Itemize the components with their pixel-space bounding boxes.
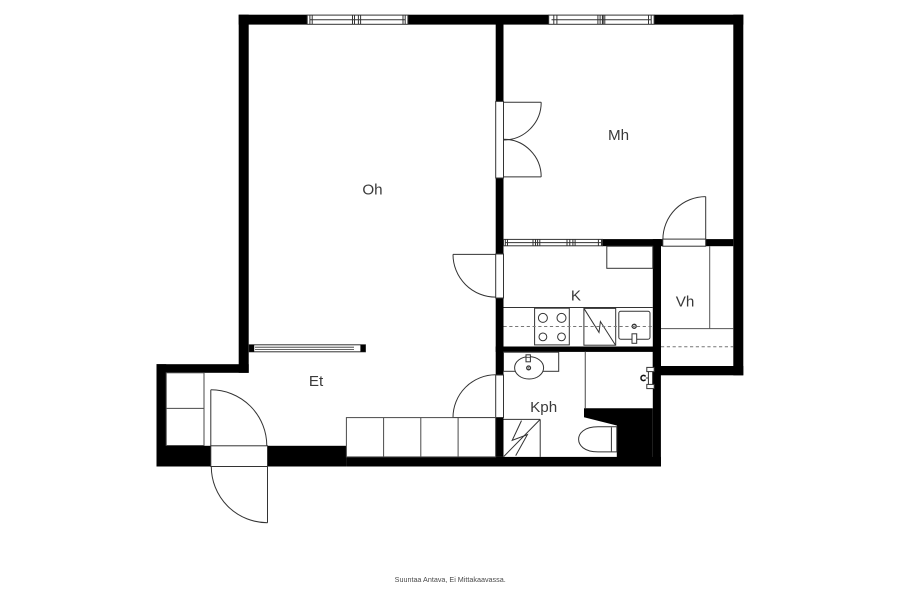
svg-text:K: K: [571, 288, 581, 305]
svg-text:Suuntaa Antava, Ei Mittakaavas: Suuntaa Antava, Ei Mittakaavassa.: [395, 575, 506, 584]
svg-text:Vh: Vh: [676, 294, 695, 311]
svg-text:Et: Et: [309, 373, 324, 390]
svg-text:Kph: Kph: [530, 399, 557, 416]
svg-text:Oh: Oh: [362, 182, 382, 199]
svg-text:Mh: Mh: [608, 127, 629, 144]
